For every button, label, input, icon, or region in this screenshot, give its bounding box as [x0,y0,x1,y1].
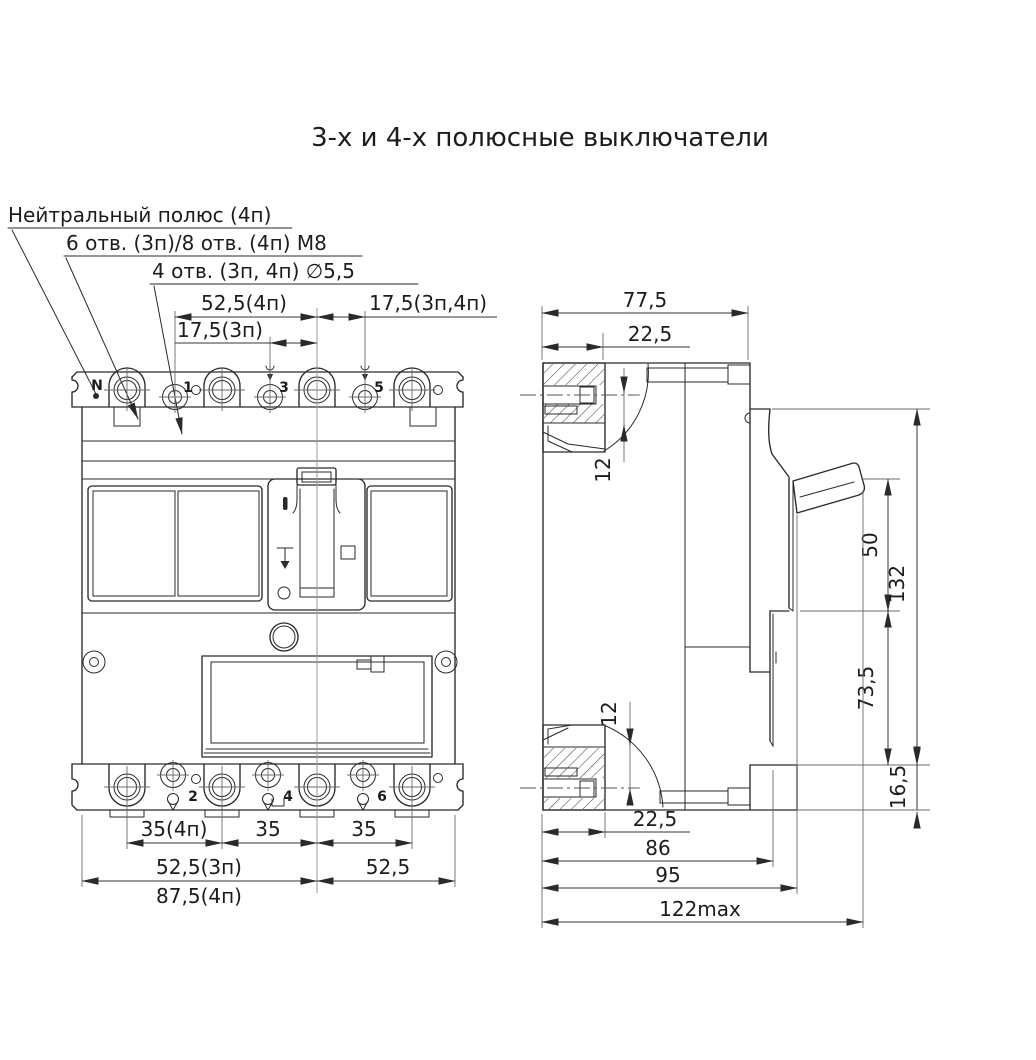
drawing-page: 3-х и 4-х полюсные выключатели Нейтральн… [0,0,1036,1060]
dim-22-5-bottom: 22,5 [633,807,678,831]
pole-label-n: N [91,378,103,394]
top-terminal-section [520,363,750,452]
dim-87-5-4p: 87,5(4п) [156,884,242,908]
pole-label-2: 2 [188,789,198,805]
dim-122max: 122max [659,897,741,921]
dim-86: 86 [645,836,670,860]
test-button[interactable] [270,623,298,651]
pole-label-6: 6 [377,789,387,805]
face-windows [88,486,452,601]
pole-label-4: 4 [283,789,293,805]
leader-holes-d55 [154,286,182,434]
mounting-hole-bottom-right [434,774,443,783]
dim-52-5-3p: 52,5(3п) [156,855,242,879]
bottom-terminal-section [520,725,750,810]
pole-label-3: 3 [279,380,289,396]
page-title: 3-х и 4-х полюсные выключатели [311,123,769,153]
dim-77-5: 77,5 [623,288,668,312]
side-handle[interactable] [793,463,864,513]
pole-label-1: 1 [183,380,193,396]
dim-35-4p: 35(4п) [141,817,208,841]
dim-132: 132 [885,565,909,603]
dim-35-b: 35 [351,817,376,841]
callout-holes-m8: 6 отв. (3п)/8 отв. (4п) М8 [66,231,327,255]
dim-12-top: 12 [591,457,615,482]
dim-22-5-top: 22,5 [628,322,673,346]
reset-mark [278,587,290,599]
callout-holes-d55: 4 отв. (3п, 4п) ∅5,5 [152,259,355,283]
dim-16-5: 16,5 [886,765,910,810]
dim-17-5-3p: 17,5(3п) [177,318,263,342]
on-mark [283,497,288,510]
dim-50: 50 [858,532,882,557]
dim-95: 95 [655,863,680,887]
indicator-window [341,546,355,559]
mounting-hole-bottom-left [192,775,201,784]
dim-35-a: 35 [255,817,280,841]
pole-label-5: 5 [374,380,384,396]
bottom-terminal-screws [157,760,443,810]
dim-52-5-4p: 52,5(4п) [201,291,287,315]
side-view [520,363,864,810]
dim-52-5: 52,5 [366,855,411,879]
nameplate-latch [357,660,371,669]
dim-12-bottom: 12 [597,701,621,726]
dim-17-5-3p4p: 17,5(3п,4п) [369,291,487,315]
dim-73-5: 73,5 [854,666,878,711]
trip-arrow-icon [277,548,293,561]
technical-drawing: 3-х и 4-х полюсные выключатели Нейтральн… [0,0,1036,1060]
front-view [72,366,463,817]
base-foot [750,765,797,810]
callout-neutral-pole: Нейтральный полюс (4п) [8,203,271,227]
